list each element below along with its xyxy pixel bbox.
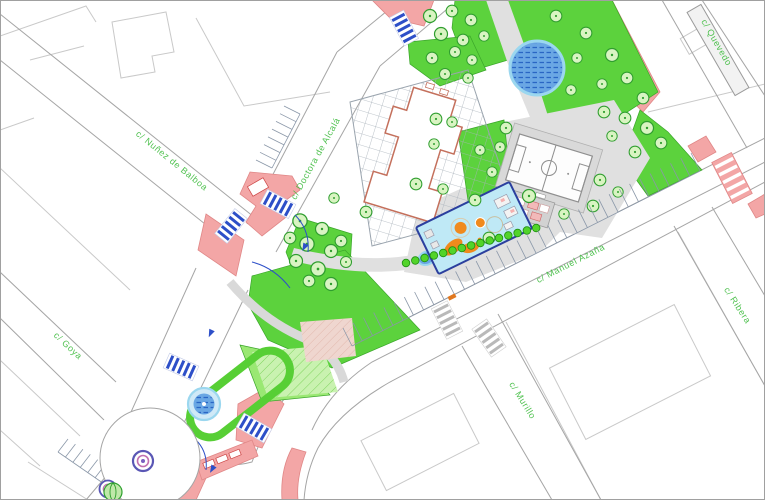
tree-icon — [303, 275, 315, 287]
globe-tree — [104, 483, 122, 500]
shrub-icon — [486, 237, 494, 245]
tree-icon — [325, 245, 338, 258]
tree-icon — [447, 117, 457, 127]
tree-icon — [300, 237, 314, 251]
shrub-icon — [421, 254, 429, 262]
shrub-icon — [495, 234, 503, 242]
tree-icon — [410, 178, 422, 190]
tree-icon — [463, 73, 473, 83]
shrub-icon — [402, 259, 410, 267]
tree-icon — [465, 14, 477, 26]
tree-icon — [311, 262, 325, 276]
shrub-icon — [430, 252, 438, 260]
tree-icon — [619, 112, 631, 124]
tree-icon — [449, 46, 460, 57]
shrub-icon — [449, 247, 457, 255]
pond — [510, 41, 564, 95]
tree-icon — [475, 145, 485, 155]
tree-icon — [325, 278, 338, 291]
shrub-icon — [514, 229, 522, 237]
fountain — [188, 388, 220, 420]
tree-icon — [284, 232, 296, 244]
tree-icon — [606, 49, 619, 62]
tree-icon — [340, 256, 351, 267]
tree-icon — [598, 106, 610, 118]
tree-icon — [435, 28, 448, 41]
tree-icon — [637, 92, 649, 104]
tree-icon — [467, 55, 477, 65]
tree-icon — [360, 206, 372, 218]
tree-icon — [438, 184, 448, 194]
tree-icon — [316, 223, 329, 236]
site-plan-map: c/ Nuñez de Balboa c/ Doctora de Alcalá … — [0, 0, 765, 500]
tree-icon — [550, 10, 562, 22]
tree-icon — [572, 53, 582, 63]
tree-icon — [446, 5, 458, 17]
tree-icon — [495, 142, 505, 152]
tree-icon — [580, 27, 592, 39]
shrub-icon — [477, 239, 485, 247]
roundabout-center — [133, 451, 153, 471]
tree-icon — [613, 187, 623, 197]
tree-icon — [457, 34, 469, 46]
shrub-icon — [523, 227, 531, 235]
tree-icon — [439, 68, 450, 79]
tree-icon — [487, 167, 497, 177]
tree-icon — [597, 79, 607, 89]
shrub-icon — [412, 257, 420, 265]
tree-icon — [641, 122, 654, 135]
tree-icon — [621, 72, 633, 84]
tree-icon — [479, 31, 489, 41]
tree-icon — [335, 235, 347, 247]
shrub-icon — [505, 232, 513, 240]
tree-icon — [629, 146, 641, 158]
shrub-icon — [458, 244, 466, 252]
tree-icon — [290, 255, 303, 268]
tree-icon — [426, 52, 438, 64]
tree-icon — [523, 190, 536, 203]
shrub-icon — [439, 249, 447, 257]
tree-icon — [430, 113, 442, 125]
plaza-pink-hatch — [300, 318, 356, 362]
shrub-icon — [532, 224, 540, 232]
tree-icon — [655, 137, 667, 149]
shrub-icon — [467, 242, 475, 250]
tree-icon — [500, 122, 512, 134]
tree-icon — [566, 85, 576, 95]
tree-icon — [329, 193, 339, 203]
tree-icon — [424, 10, 437, 23]
tree-icon — [559, 209, 569, 219]
tree-icon — [469, 194, 481, 206]
tree-icon — [594, 174, 606, 186]
tree-icon — [429, 139, 439, 149]
tree-icon — [607, 131, 617, 141]
